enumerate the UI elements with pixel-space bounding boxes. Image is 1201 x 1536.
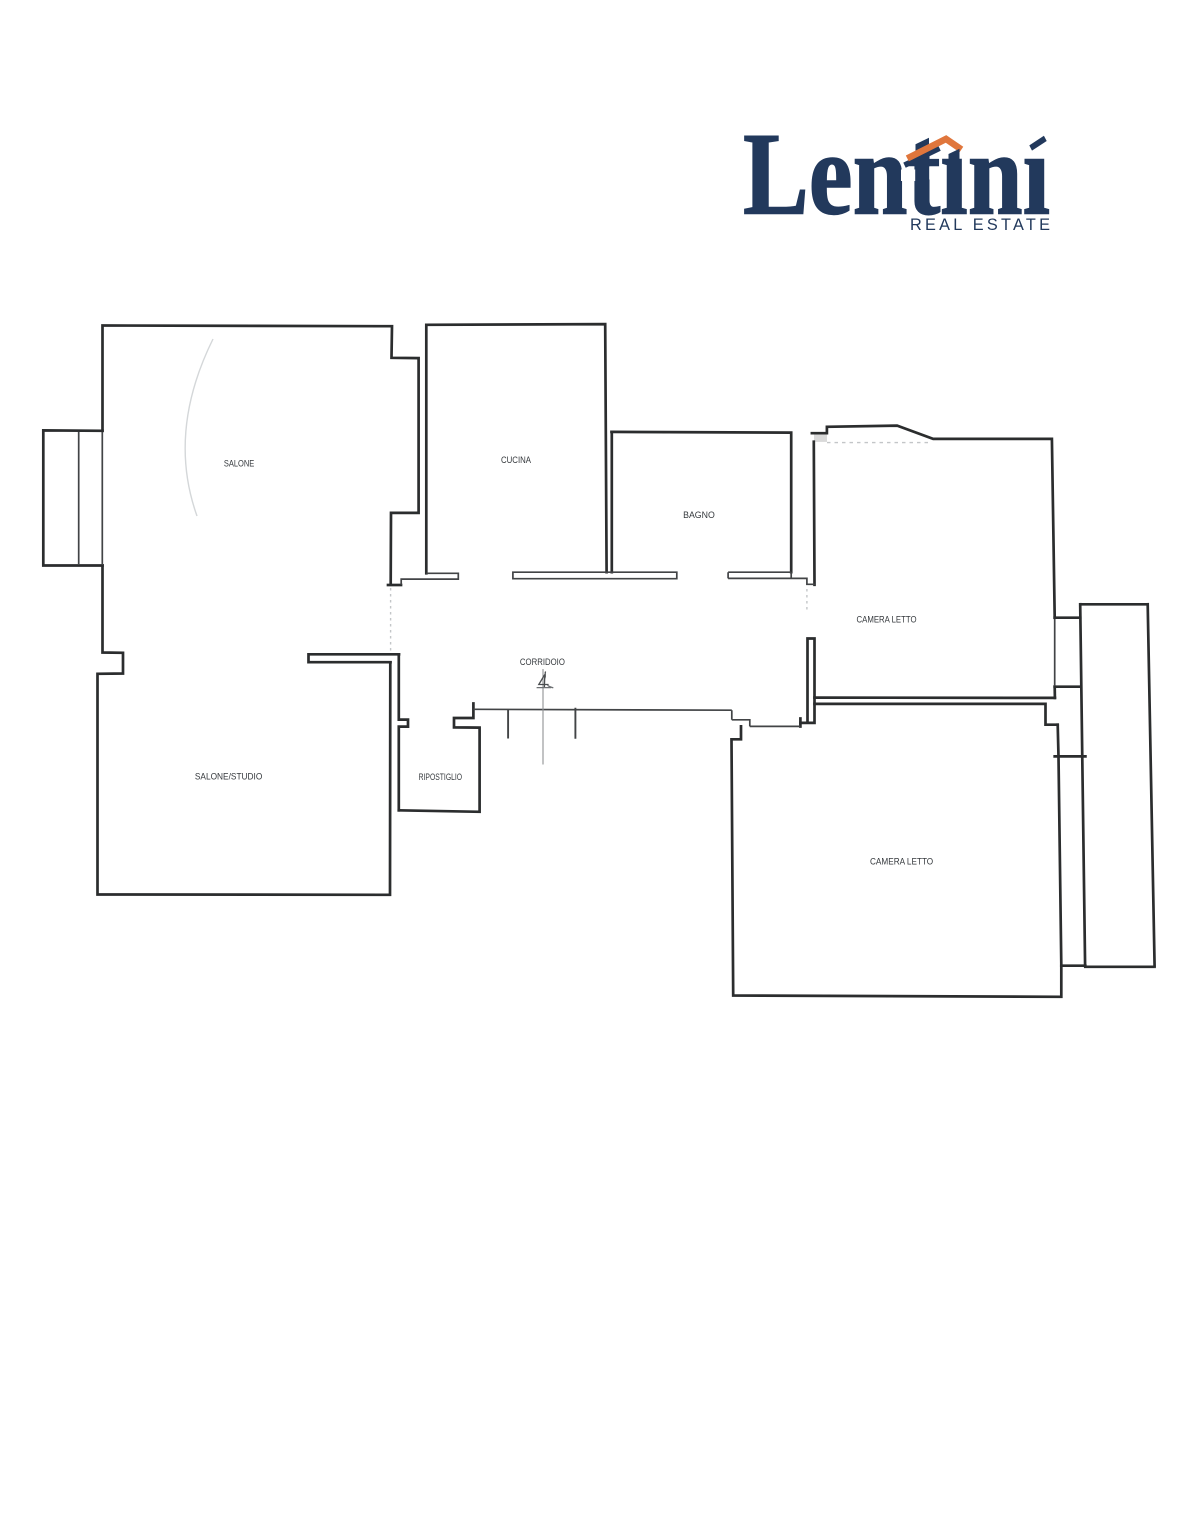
svg-text:SALONE/STUDIO: SALONE/STUDIO	[195, 772, 262, 783]
svg-text:CORRIDOIO: CORRIDOIO	[520, 657, 565, 668]
svg-text:CAMERA LETTO: CAMERA LETTO	[870, 856, 933, 867]
svg-text:CUCINA: CUCINA	[501, 455, 531, 466]
svg-text:SALONE: SALONE	[224, 458, 254, 469]
svg-text:BAGNO: BAGNO	[683, 510, 715, 521]
svg-text:RIPOSTIGLIO: RIPOSTIGLIO	[419, 772, 463, 783]
svg-text:REAL ESTATE: REAL ESTATE	[910, 216, 1050, 234]
svg-text:CAMERA LETTO: CAMERA LETTO	[857, 614, 917, 625]
